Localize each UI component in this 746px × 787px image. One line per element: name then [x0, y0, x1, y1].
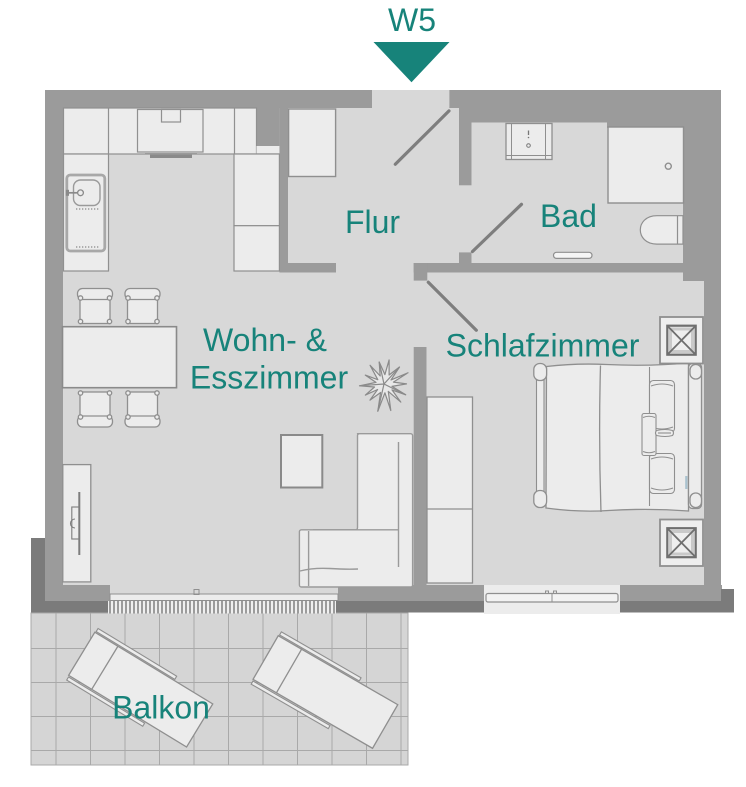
svg-text:Esszimmer: Esszimmer [190, 360, 349, 396]
svg-text:Balkon: Balkon [112, 690, 210, 726]
svg-text:Flur: Flur [345, 204, 400, 240]
svg-text:W5: W5 [388, 2, 436, 38]
svg-text:Bad: Bad [540, 198, 597, 234]
svg-text:Wohn- &: Wohn- & [203, 322, 327, 358]
svg-text:Schlafzimmer: Schlafzimmer [446, 328, 640, 364]
